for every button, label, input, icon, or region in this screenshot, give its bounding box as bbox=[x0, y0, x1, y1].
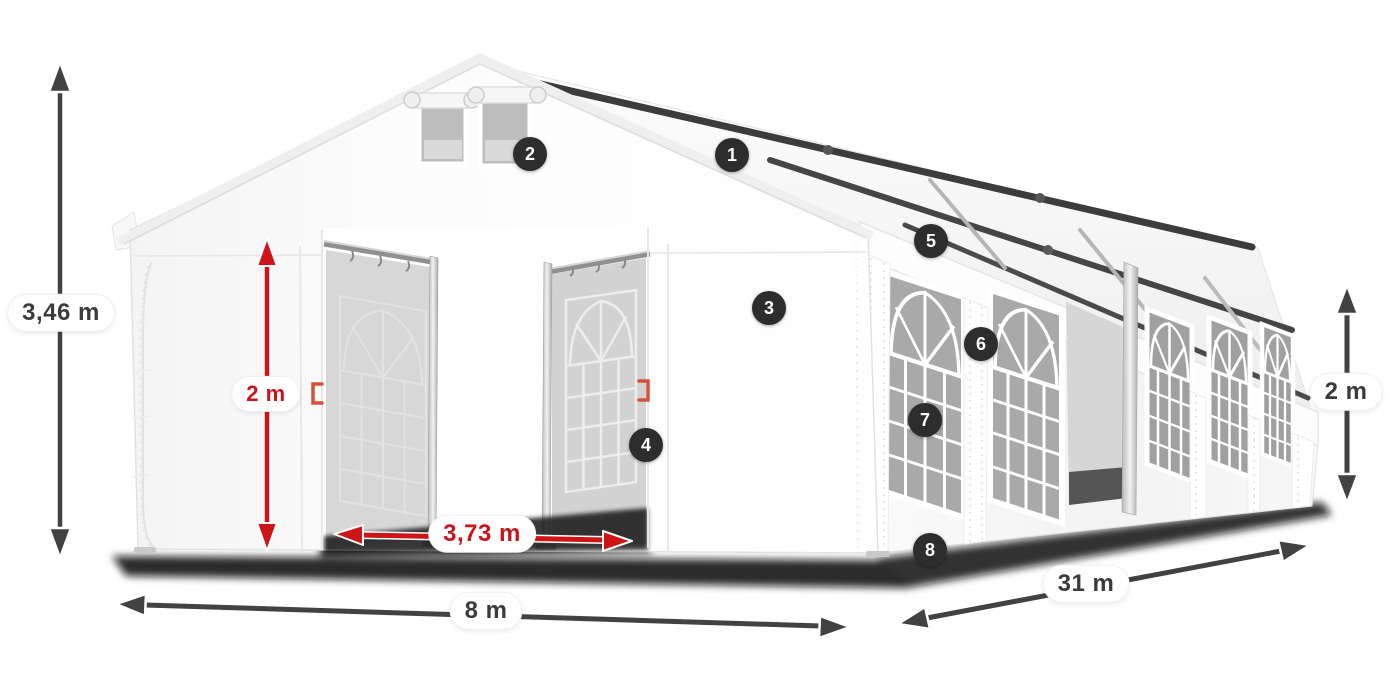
tent-dimension-diagram: 3,46 m 2 m 3,73 m 8 m 31 m 2 m 1 2 3 4 5… bbox=[0, 0, 1400, 700]
dimension-label-width: 8 m bbox=[451, 593, 522, 629]
dimension-label-clear-height: 2 m bbox=[232, 377, 299, 411]
dimension-label-total-height: 3,46 m bbox=[8, 295, 114, 331]
callout-7[interactable]: 7 bbox=[908, 403, 942, 437]
callout-8[interactable]: 8 bbox=[913, 533, 947, 567]
callout-5[interactable]: 5 bbox=[914, 224, 948, 258]
dimension-label-entrance-width: 3,73 m bbox=[429, 516, 535, 552]
door-pole bbox=[428, 256, 438, 545]
left-door-open bbox=[324, 241, 442, 549]
side-window-5 bbox=[1262, 324, 1293, 466]
dimension-label-side-height: 2 m bbox=[1311, 374, 1382, 410]
right-door-open bbox=[536, 251, 650, 550]
callout-6[interactable]: 6 bbox=[964, 327, 998, 361]
side-window-3 bbox=[1147, 309, 1192, 481]
door-pole bbox=[542, 262, 552, 547]
dimension-label-length: 31 m bbox=[1044, 566, 1129, 602]
callout-1[interactable]: 1 bbox=[715, 138, 749, 172]
entrance-opening bbox=[322, 228, 650, 553]
side-window-1 bbox=[886, 272, 964, 517]
side-window-4 bbox=[1209, 317, 1250, 477]
side-window-2 bbox=[990, 290, 1062, 523]
callout-2[interactable]: 2 bbox=[513, 137, 547, 171]
corner-pole bbox=[1122, 262, 1138, 515]
callout-3[interactable]: 3 bbox=[752, 291, 786, 325]
tent-illustration bbox=[0, 0, 1400, 700]
callout-4[interactable]: 4 bbox=[629, 428, 663, 462]
